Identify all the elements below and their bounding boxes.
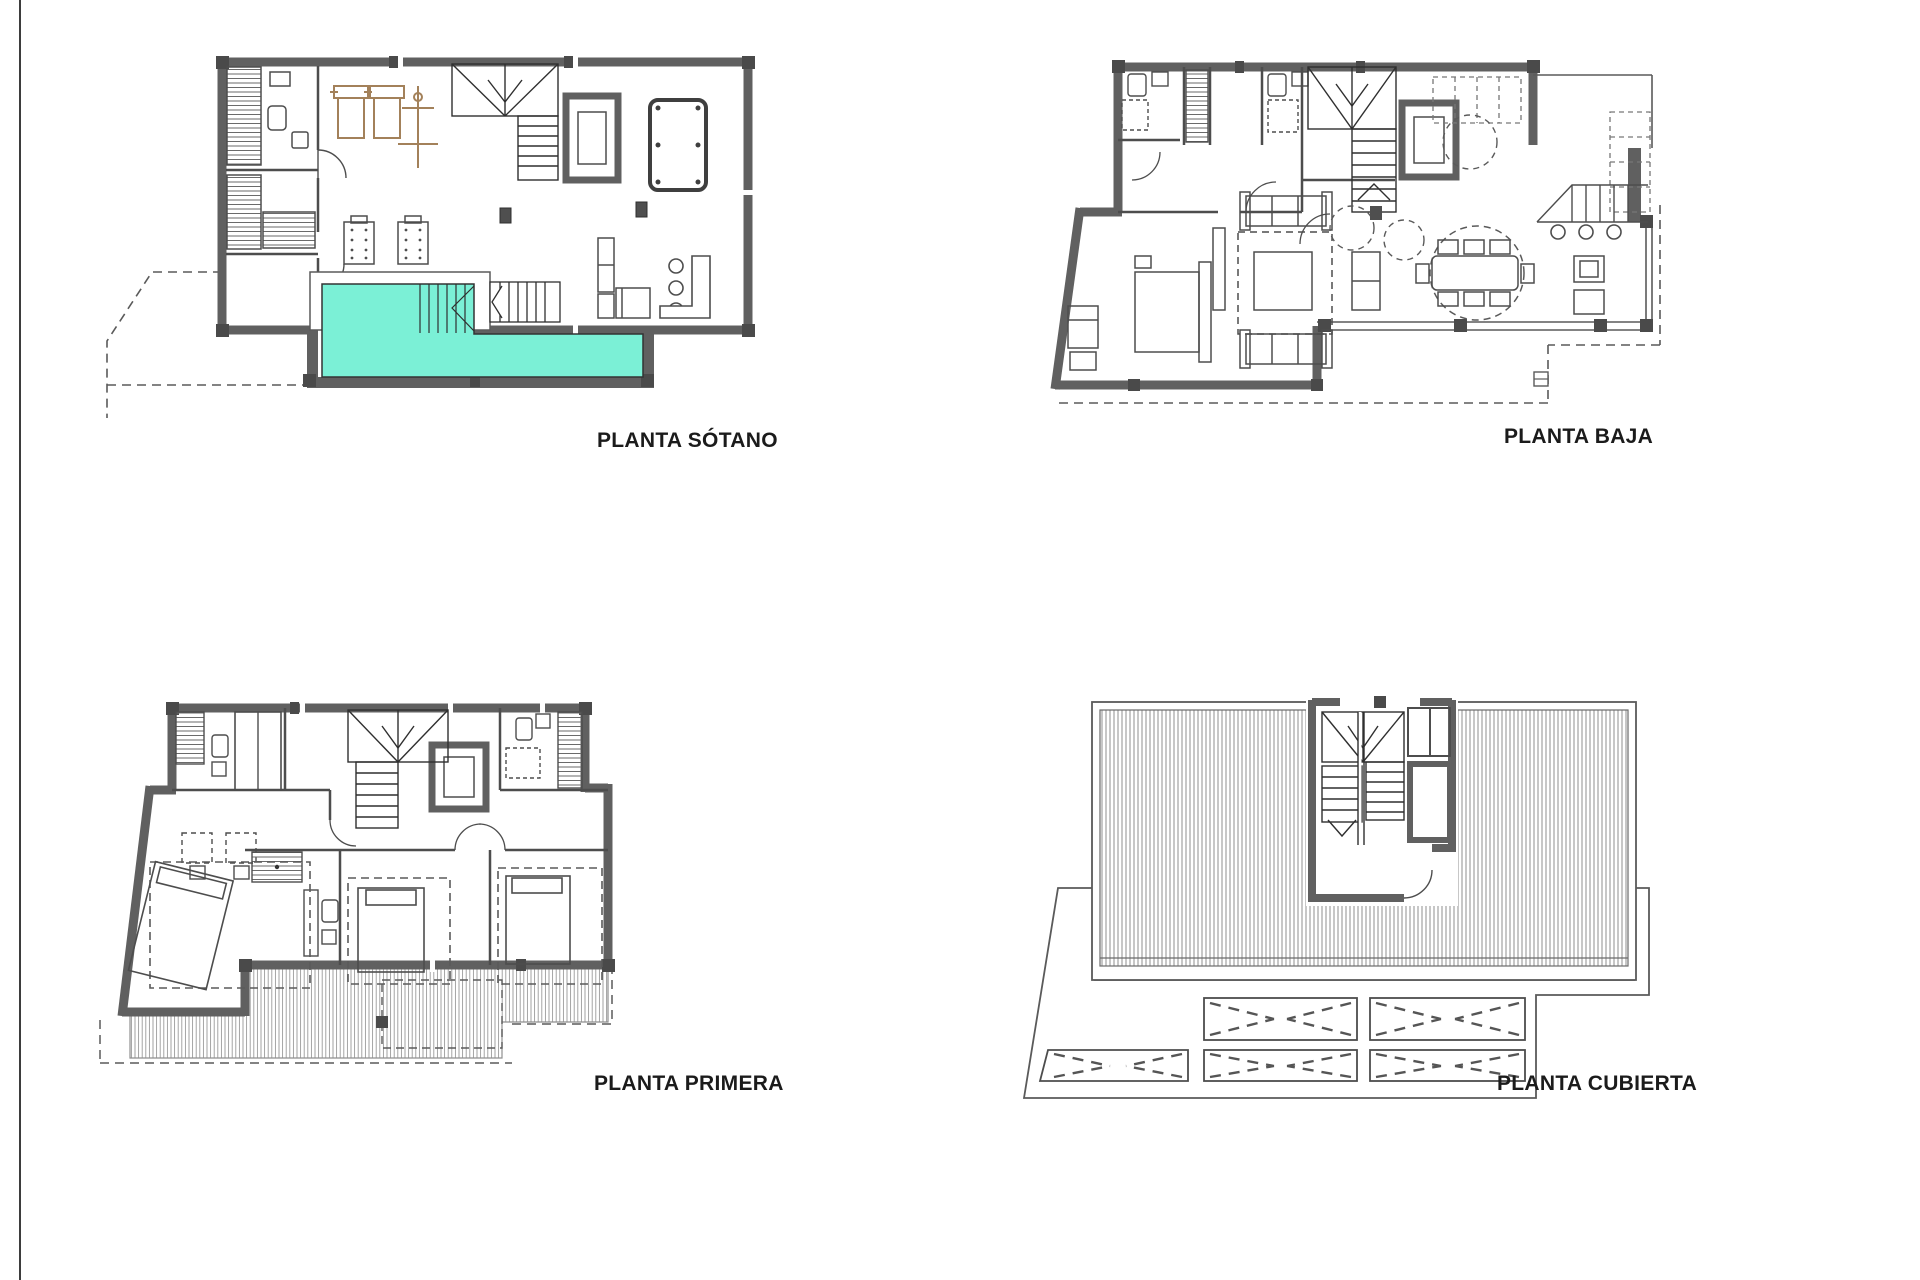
stairs-icon — [1308, 67, 1396, 212]
wall-pillars — [166, 701, 615, 972]
closet-hatched — [1186, 70, 1208, 142]
lounge-furniture — [598, 238, 650, 318]
stair-bulkhead — [1306, 696, 1458, 906]
door-arcs — [318, 150, 346, 290]
plan-cubierta-drawing — [1024, 696, 1649, 1098]
plan-label-sotano: PLANTA SÓTANO — [597, 429, 778, 453]
bedroom — [1068, 256, 1211, 370]
bathroom-fixtures — [268, 72, 308, 148]
vanity-desks — [182, 833, 256, 863]
elevator-icon — [566, 96, 618, 180]
kitchen-units — [1574, 256, 1604, 314]
bathroom-left — [176, 712, 281, 790]
massage-beds — [344, 216, 428, 264]
interior-walls — [172, 708, 608, 965]
site-boundary-dashed — [107, 272, 307, 418]
small-bath-fixtures — [304, 890, 338, 956]
plan-label-primera: PLANTA PRIMERA — [594, 1072, 784, 1096]
plan-primera-drawing — [100, 701, 615, 1063]
site-boundary-dashed — [1057, 205, 1660, 403]
bar-counter — [660, 256, 710, 318]
plan-baja-drawing — [1055, 60, 1660, 403]
closet-hatched — [252, 852, 302, 882]
dining-set — [1416, 226, 1534, 320]
plan-label-cubierta: PLANTA CUBIERTA — [1497, 1072, 1697, 1096]
pergola-louvres — [1040, 998, 1525, 1081]
pool-side-stairs — [490, 282, 560, 322]
gym-equipment — [330, 86, 438, 168]
plan-sotano-drawing — [107, 55, 755, 418]
interior-walls — [1118, 67, 1395, 212]
column — [1370, 206, 1382, 220]
sauna — [227, 67, 315, 249]
elevator-icon — [432, 745, 486, 809]
jacuzzi-icon — [650, 100, 706, 190]
columns — [500, 202, 647, 223]
stairs-icon — [452, 64, 558, 180]
bar-stools — [1551, 225, 1621, 239]
living-room — [1213, 192, 1380, 368]
bathroom-fixtures — [1122, 72, 1308, 132]
plan-sheet: PLANTA SÓTANO PLANTA BAJA PLANTA PRIMERA… — [0, 0, 1920, 1280]
elevator-icon — [1402, 103, 1456, 177]
plan-label-baja: PLANTA BAJA — [1504, 425, 1653, 449]
bathroom-right — [506, 712, 582, 788]
door-arcs — [1132, 152, 1330, 244]
kitchen-counters — [1433, 77, 1650, 212]
